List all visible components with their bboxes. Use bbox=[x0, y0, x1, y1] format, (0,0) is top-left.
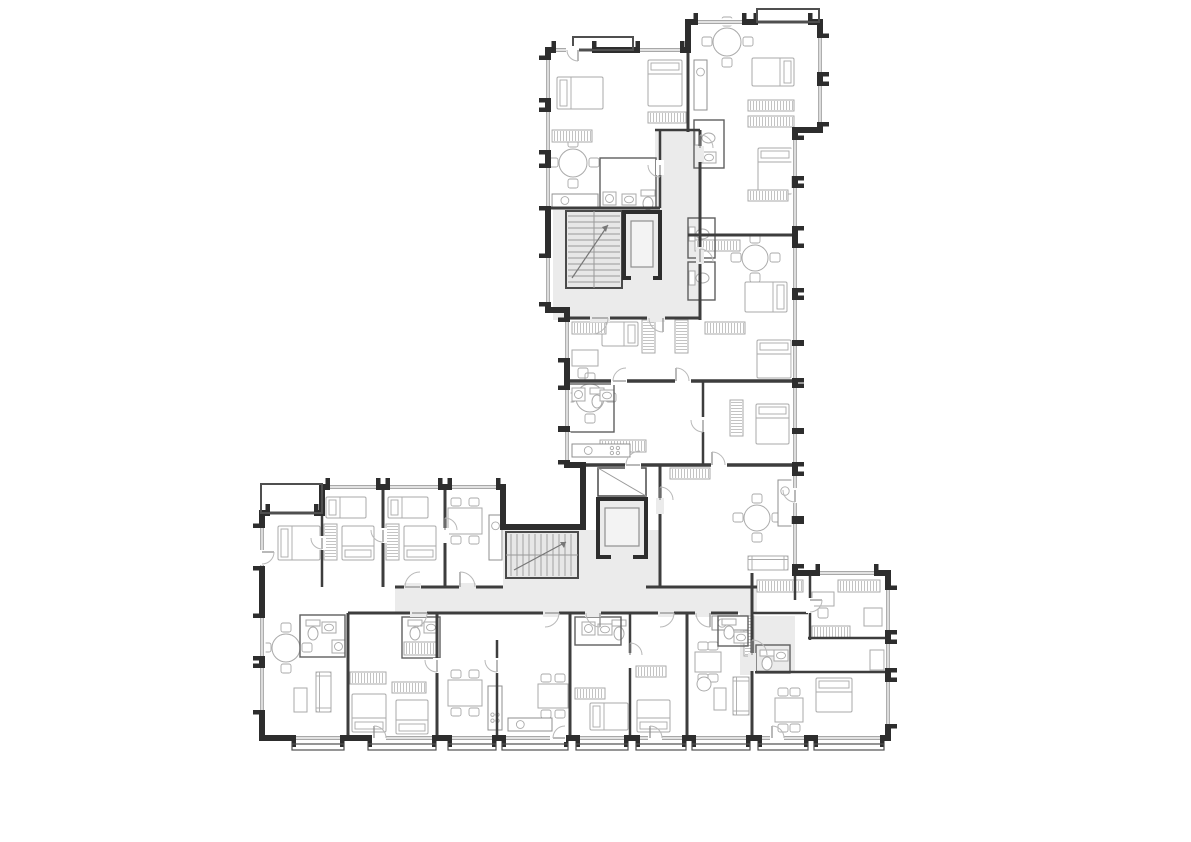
window-sill-nub bbox=[680, 41, 685, 47]
window-sill-nub bbox=[891, 586, 897, 591]
chair bbox=[469, 708, 479, 716]
balcony-rail bbox=[692, 744, 750, 750]
round-table bbox=[744, 505, 770, 531]
chair bbox=[541, 710, 551, 718]
window-sill-nub bbox=[891, 724, 897, 729]
window-sill-nub bbox=[539, 150, 545, 155]
chair bbox=[770, 253, 780, 262]
chair bbox=[451, 536, 461, 544]
window-sill-nub bbox=[253, 566, 259, 571]
cabinet bbox=[864, 608, 882, 626]
chair bbox=[541, 674, 551, 682]
chair bbox=[752, 533, 762, 542]
chair bbox=[302, 643, 312, 652]
bed bbox=[648, 60, 682, 106]
toilet bbox=[306, 620, 320, 640]
wardrobe bbox=[552, 130, 592, 142]
toilet-bowl bbox=[762, 657, 772, 670]
window-sill-nub bbox=[253, 664, 259, 669]
window-sill-nub bbox=[326, 478, 331, 484]
window-sill-nub bbox=[798, 462, 804, 467]
wardrobe bbox=[575, 688, 605, 699]
window-sill-nub bbox=[798, 296, 804, 301]
window-opening bbox=[791, 248, 798, 288]
chair bbox=[469, 670, 479, 678]
window-sill-nub bbox=[539, 164, 545, 169]
kitchen-counter bbox=[694, 60, 707, 110]
window-sill-nub bbox=[558, 386, 564, 391]
dining-table bbox=[775, 698, 803, 722]
balcony-rail bbox=[448, 744, 496, 750]
window-sill-nub bbox=[798, 226, 804, 231]
window-opening bbox=[563, 322, 570, 358]
floor-plan-canvas bbox=[0, 0, 1191, 842]
kitchen-counter bbox=[508, 718, 552, 731]
window-sill-nub bbox=[798, 244, 804, 249]
round-table bbox=[559, 149, 587, 177]
window-opening bbox=[884, 682, 891, 724]
window-sill-nub bbox=[891, 630, 897, 635]
window-sill-nub bbox=[798, 176, 804, 181]
wardrobe bbox=[675, 320, 688, 353]
bed bbox=[637, 700, 670, 732]
window-opening bbox=[816, 38, 823, 72]
chair bbox=[568, 179, 578, 188]
door-opening bbox=[441, 528, 449, 543]
wardrobe bbox=[748, 116, 794, 127]
window-sill-nub bbox=[539, 254, 545, 259]
chair bbox=[555, 710, 565, 718]
bed bbox=[602, 322, 638, 346]
bed bbox=[557, 77, 603, 109]
window-sill-nub bbox=[539, 98, 545, 103]
sofa bbox=[733, 677, 749, 715]
window-sill-nub bbox=[891, 668, 897, 673]
elevator-cabin bbox=[605, 508, 639, 546]
door-opening bbox=[626, 653, 634, 668]
elevator-door-gap bbox=[631, 276, 653, 281]
cabinet bbox=[714, 688, 726, 710]
window-sill-nub bbox=[386, 478, 391, 484]
window-sill-nub bbox=[823, 72, 829, 77]
chair bbox=[702, 37, 712, 46]
window-opening bbox=[544, 60, 551, 98]
chair bbox=[451, 498, 461, 506]
window-opening bbox=[791, 434, 798, 462]
window-sill-nub bbox=[539, 206, 545, 211]
window-opening bbox=[791, 140, 798, 176]
round-table bbox=[713, 28, 741, 56]
window-sill-nub bbox=[798, 564, 804, 569]
bed bbox=[342, 526, 374, 560]
toilet-tank bbox=[722, 619, 736, 625]
chair bbox=[589, 158, 599, 167]
window-opening bbox=[580, 734, 624, 741]
window-sill-nub bbox=[253, 524, 259, 529]
chair bbox=[281, 623, 291, 632]
window-sill-nub bbox=[891, 640, 897, 645]
kitchen-counter bbox=[572, 444, 630, 457]
wardrobe bbox=[572, 322, 606, 334]
chair bbox=[469, 498, 479, 506]
chair bbox=[733, 513, 743, 522]
window-sill-nub bbox=[438, 478, 443, 484]
wardrobe bbox=[705, 322, 745, 334]
toilet-tank bbox=[408, 620, 422, 626]
door-opening bbox=[696, 146, 704, 162]
window-sill-nub bbox=[539, 302, 545, 307]
chair bbox=[790, 688, 800, 696]
window-sill-nub bbox=[823, 82, 829, 87]
toilet-tank bbox=[612, 620, 626, 626]
window-sill-nub bbox=[253, 614, 259, 619]
washing-machine bbox=[603, 192, 616, 205]
window-opening bbox=[884, 590, 891, 630]
cabinet bbox=[572, 350, 598, 366]
window-opening bbox=[258, 668, 265, 710]
window-opening bbox=[696, 734, 746, 741]
window-sill-nub bbox=[742, 13, 747, 19]
balcony-rail bbox=[502, 744, 568, 750]
chair bbox=[585, 414, 595, 423]
door-opening bbox=[459, 583, 476, 591]
toilet-tank bbox=[689, 271, 695, 285]
door-opening bbox=[566, 46, 579, 54]
window-sill-nub bbox=[558, 358, 564, 363]
window-sill-nub bbox=[592, 41, 597, 47]
window-opening bbox=[818, 734, 880, 741]
elevator-door-gap bbox=[611, 555, 633, 560]
window-sill-nub bbox=[816, 564, 821, 570]
pouf bbox=[697, 677, 711, 691]
washing-machine bbox=[332, 640, 345, 653]
chair bbox=[818, 608, 828, 618]
toilet-tank bbox=[641, 190, 655, 196]
chair bbox=[790, 724, 800, 732]
window-opening bbox=[791, 300, 798, 340]
bed bbox=[752, 58, 794, 86]
chair bbox=[750, 273, 760, 282]
balcony bbox=[261, 484, 322, 513]
floor-plan-page bbox=[0, 0, 1191, 842]
window-opening bbox=[640, 46, 680, 53]
window-opening bbox=[452, 734, 492, 741]
window-opening bbox=[258, 618, 265, 656]
corridor bbox=[755, 616, 795, 672]
cabinet bbox=[294, 688, 307, 712]
toilet bbox=[408, 620, 422, 640]
window-sill-nub bbox=[253, 710, 259, 715]
chair bbox=[469, 536, 479, 544]
window-opening bbox=[452, 483, 496, 490]
bed bbox=[352, 694, 386, 732]
window-sill-nub bbox=[798, 378, 804, 383]
window-opening bbox=[791, 346, 798, 378]
dining-table bbox=[695, 652, 721, 672]
window-sill-nub bbox=[798, 136, 804, 141]
window-sill-nub bbox=[539, 56, 545, 61]
window-opening bbox=[544, 258, 551, 302]
bed bbox=[278, 526, 320, 560]
toilet-bowl bbox=[410, 627, 420, 640]
window-sill-nub bbox=[376, 478, 381, 484]
dining-table bbox=[538, 684, 568, 708]
round-table bbox=[742, 245, 768, 271]
toilet-bowl bbox=[724, 626, 734, 639]
kitchen-counter bbox=[552, 194, 598, 207]
dining-table bbox=[448, 680, 482, 706]
window-sill-nub bbox=[808, 13, 813, 19]
bed bbox=[757, 340, 791, 378]
wardrobe bbox=[748, 100, 794, 111]
toilet-tank bbox=[306, 620, 320, 626]
balcony-rail bbox=[576, 744, 628, 750]
chair bbox=[778, 688, 788, 696]
bed bbox=[816, 678, 852, 712]
window-sill-nub bbox=[874, 564, 879, 570]
bed bbox=[404, 526, 436, 560]
window-opening bbox=[544, 112, 551, 150]
window-opening bbox=[791, 524, 798, 564]
door-opening bbox=[585, 609, 601, 617]
window-sill-nub bbox=[798, 384, 804, 389]
window-sill-nub bbox=[798, 520, 804, 525]
window-sill-nub bbox=[798, 342, 804, 347]
window-sill-nub bbox=[558, 428, 564, 433]
window-opening bbox=[563, 432, 570, 460]
elevator-cabin bbox=[631, 221, 653, 267]
sofa bbox=[748, 556, 788, 570]
window-opening bbox=[816, 86, 823, 122]
door-opening bbox=[748, 653, 756, 671]
wardrobe bbox=[670, 468, 710, 479]
sofa bbox=[316, 672, 331, 712]
bed bbox=[758, 148, 792, 194]
window-sill-nub bbox=[823, 34, 829, 39]
door-opening bbox=[656, 498, 664, 514]
window-opening bbox=[698, 18, 742, 25]
balcony-rail bbox=[368, 744, 436, 750]
window-opening bbox=[390, 483, 438, 490]
chair bbox=[281, 664, 291, 673]
window-sill-nub bbox=[552, 41, 557, 47]
window-opening bbox=[791, 388, 798, 428]
toilet bbox=[612, 620, 626, 640]
window-sill-nub bbox=[496, 478, 501, 484]
chair bbox=[451, 708, 461, 716]
chair bbox=[555, 674, 565, 682]
chair bbox=[698, 642, 708, 650]
door-opening bbox=[695, 609, 711, 617]
wardrobe bbox=[636, 666, 666, 677]
kitchen-counter bbox=[488, 686, 502, 730]
wardrobe bbox=[392, 682, 426, 693]
window-sill-nub bbox=[558, 318, 564, 323]
washing-machine bbox=[582, 622, 595, 635]
wardrobe bbox=[404, 642, 438, 655]
toilet-bowl bbox=[308, 627, 318, 640]
bed bbox=[745, 282, 787, 312]
bed bbox=[590, 703, 628, 730]
window-sill-nub bbox=[539, 108, 545, 113]
cabinet bbox=[870, 650, 884, 670]
balcony-rail bbox=[292, 744, 344, 750]
chair bbox=[743, 37, 753, 46]
balcony-rail bbox=[758, 744, 808, 750]
window-opening bbox=[820, 569, 874, 576]
bed bbox=[396, 700, 428, 734]
window-sill-nub bbox=[798, 472, 804, 477]
window-sill-nub bbox=[266, 504, 271, 510]
window-sill-nub bbox=[253, 656, 259, 661]
window-opening bbox=[296, 734, 340, 741]
window-sill-nub bbox=[636, 41, 641, 47]
toilet-bowl bbox=[614, 627, 624, 640]
chair bbox=[752, 494, 762, 503]
window-sill-nub bbox=[798, 184, 804, 189]
window-opening bbox=[884, 644, 891, 668]
bed bbox=[756, 404, 789, 444]
window-sill-nub bbox=[448, 478, 453, 484]
window-sill-nub bbox=[798, 288, 804, 293]
wardrobe bbox=[642, 320, 655, 353]
chair bbox=[722, 58, 732, 67]
window-opening bbox=[544, 168, 551, 206]
chair bbox=[731, 253, 741, 262]
washing-machine bbox=[572, 388, 585, 401]
window-sill-nub bbox=[314, 504, 319, 510]
chair bbox=[451, 670, 461, 678]
balcony-rail bbox=[814, 744, 884, 750]
window-sill-nub bbox=[558, 460, 564, 465]
chair bbox=[708, 642, 718, 650]
round-table bbox=[272, 634, 300, 662]
window-opening bbox=[791, 188, 798, 226]
window-opening bbox=[563, 390, 570, 426]
window-sill-nub bbox=[798, 430, 804, 435]
cabinet bbox=[812, 592, 834, 606]
toilet-bowl bbox=[696, 273, 709, 283]
window-sill-nub bbox=[694, 13, 699, 19]
window-sill-nub bbox=[823, 122, 829, 127]
window-opening bbox=[330, 483, 376, 490]
window-sill-nub bbox=[891, 678, 897, 683]
balcony-rail bbox=[636, 744, 686, 750]
wardrobe bbox=[748, 190, 788, 201]
